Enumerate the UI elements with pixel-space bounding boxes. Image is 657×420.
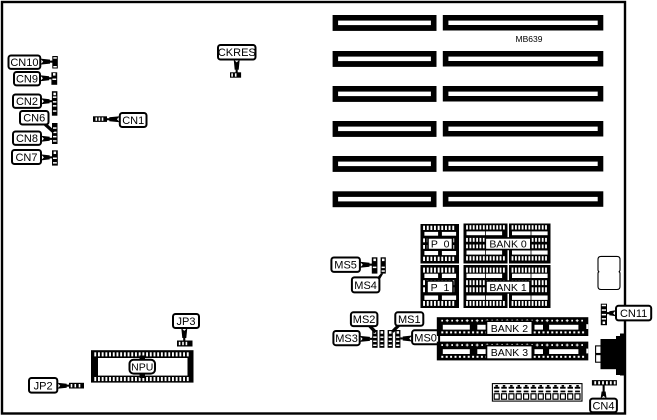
svg-text:MS5: MS5	[334, 260, 357, 272]
svg-text:CN7: CN7	[15, 152, 37, 164]
svg-text:NPU: NPU	[131, 362, 153, 374]
svg-text:BANK 1: BANK 1	[489, 282, 527, 294]
svg-text:MB639: MB639	[516, 34, 543, 44]
svg-text:BANK 3: BANK 3	[491, 347, 529, 359]
svg-text:P 1: P 1	[431, 282, 450, 294]
svg-text:CN10: CN10	[10, 57, 38, 69]
svg-text:MS1: MS1	[398, 314, 421, 326]
svg-text:MS4: MS4	[354, 280, 377, 292]
svg-text:CN8: CN8	[16, 133, 38, 145]
svg-text:JP2: JP2	[34, 380, 53, 392]
svg-text:MS3: MS3	[335, 333, 358, 345]
svg-text:CN4: CN4	[592, 400, 614, 412]
svg-text:CN6: CN6	[23, 113, 45, 125]
svg-text:BANK 0: BANK 0	[489, 239, 527, 251]
svg-text:CKRES: CKRES	[218, 47, 256, 59]
svg-text:CN1: CN1	[122, 115, 144, 127]
svg-text:JP3: JP3	[177, 316, 196, 328]
svg-text:BANK 2: BANK 2	[491, 323, 529, 335]
svg-text:CN9: CN9	[16, 74, 38, 86]
svg-text:MS2: MS2	[353, 314, 376, 326]
svg-text:CN2: CN2	[16, 96, 38, 108]
svg-text:CN11: CN11	[620, 308, 647, 320]
svg-text:P 0: P 0	[431, 239, 450, 251]
svg-text:MS0: MS0	[414, 332, 437, 344]
